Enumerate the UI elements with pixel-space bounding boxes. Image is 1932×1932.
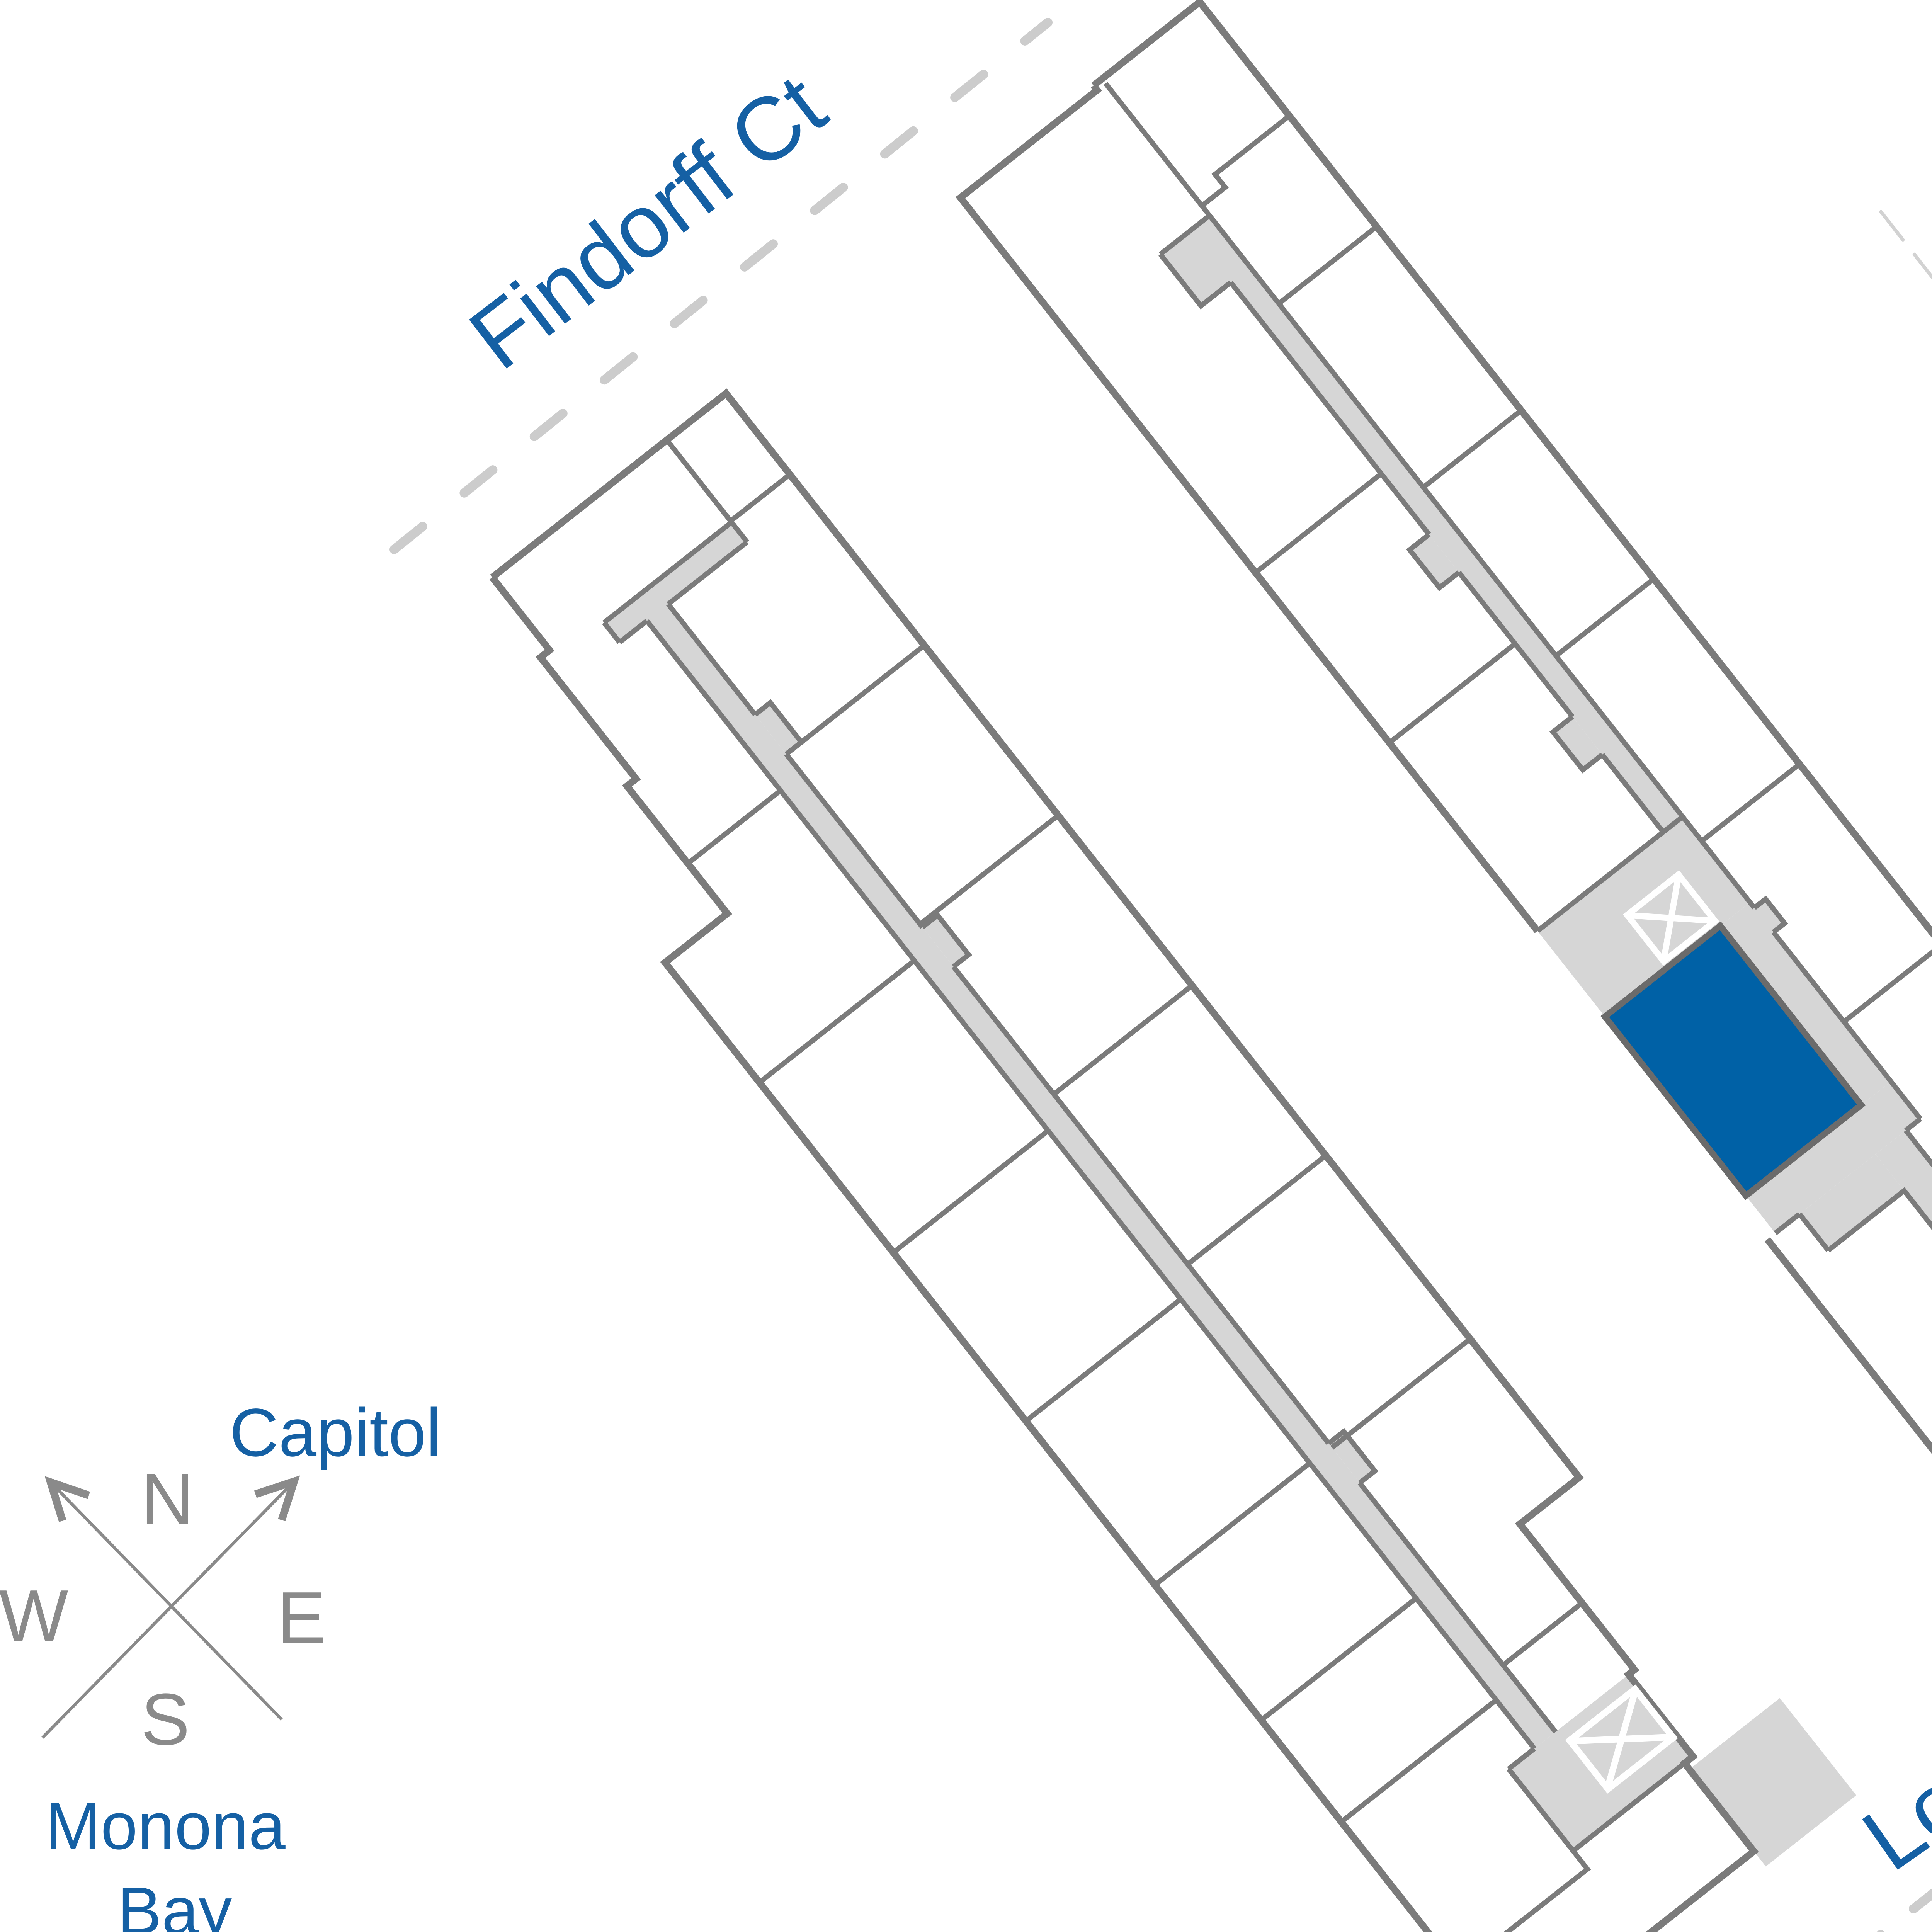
- svg-text:N: N: [141, 1458, 194, 1540]
- svg-text:Monona: Monona: [45, 1789, 286, 1863]
- svg-text:Findorff Ct: Findorff Ct: [452, 55, 844, 388]
- svg-text:W: W: [0, 1575, 68, 1657]
- svg-text:E: E: [277, 1577, 326, 1659]
- svg-text:Lorillard Ct: Lorillard Ct: [1845, 1559, 1932, 1890]
- svg-text:Capitol: Capitol: [230, 1395, 441, 1471]
- svg-text:Bay: Bay: [117, 1874, 232, 1932]
- svg-text:S: S: [141, 1679, 190, 1760]
